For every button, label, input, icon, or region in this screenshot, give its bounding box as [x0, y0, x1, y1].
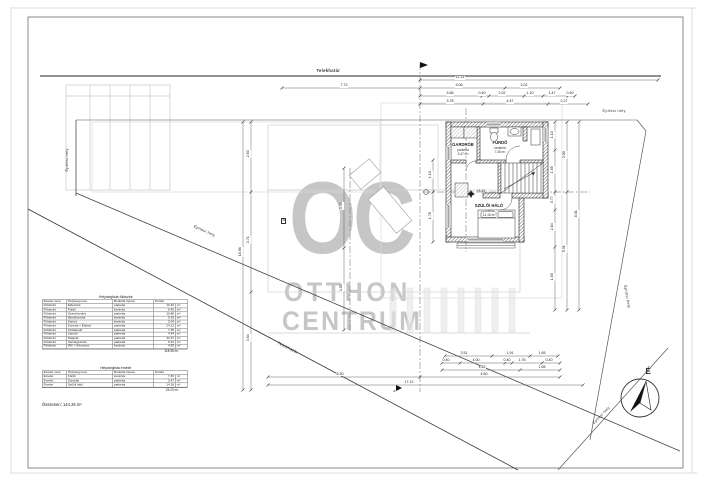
dim-label: 8.01: [575, 210, 579, 218]
furniture-below: [349, 159, 412, 234]
dim-label: 1.10: [429, 171, 433, 179]
north-letter: É: [645, 368, 651, 376]
level-mark-label: +3.10: [476, 190, 486, 193]
telekhatar-top-label: Telekhatár: [316, 69, 341, 73]
section-mark-b: B: [281, 218, 286, 224]
dim-label: 3.71: [247, 236, 251, 244]
dim-label: 4.00: [472, 359, 480, 363]
balcony-rail: [457, 243, 515, 248]
dim-label: 7.72: [340, 84, 348, 88]
axis-mark-a: a: [393, 390, 396, 393]
dim-label: 6.30: [336, 373, 344, 377]
room-table-ground-floor: Helyiséglista földszint Emelet neveHelyi…: [42, 295, 189, 353]
dim-label: 1.65: [551, 273, 555, 281]
dim-label: 1.76: [518, 359, 526, 363]
boundary-lines: [28, 76, 680, 470]
dim-label: 1.91: [506, 352, 514, 356]
dim-label: 2.02: [498, 92, 506, 96]
room-area-szuloi-halo: 14.18 m²: [482, 214, 496, 217]
dim-label: 3.64: [247, 334, 251, 342]
table-title: Helyiséglista földszint: [42, 295, 189, 299]
dim-label: 0.40: [478, 92, 486, 96]
dim-label: 3.78: [446, 100, 454, 104]
dim-label: 1.65: [538, 366, 546, 370]
dim-label: 16.96: [239, 247, 243, 257]
dim-label: 1.65: [551, 166, 555, 174]
dim-label: 3.56: [446, 92, 454, 96]
dim-label: 11.13: [455, 76, 465, 80]
dim-label: 1.10: [551, 131, 555, 139]
dim-label: 0.40: [545, 359, 553, 363]
pergola-beams: [390, 288, 515, 332]
dim-label: 1.78: [429, 212, 433, 220]
drawing-linework: [0, 0, 707, 500]
epitesi-hely-left-label: Építési hely: [66, 148, 70, 172]
dim-label: 1.65: [538, 352, 546, 356]
scan-edges: [10, 8, 697, 473]
dim-label: 2.02: [520, 84, 528, 88]
section-flag-icon: [420, 62, 428, 76]
dim-label: 1.47: [548, 92, 556, 96]
dim-label: 4.47: [506, 100, 514, 104]
dim-label: 3.51: [460, 352, 468, 356]
dim-label: 2.27: [560, 100, 568, 104]
floor-plan-sheet: OC OTTHON CENTRUM: [0, 0, 707, 500]
dim-label: 2.63: [247, 150, 251, 158]
axis-arrow-icon: [396, 385, 402, 391]
dim-label: 17.12: [404, 381, 414, 385]
room-area-gardrob: 3.47 m²: [457, 153, 469, 156]
room-table: Emelet neveHelyiség neveBurkolat típusaT…: [42, 299, 188, 348]
dim-label: 3.50: [340, 284, 344, 292]
epitesi-hely-top-right-label: Építési hely: [602, 110, 626, 114]
grand-total: Összesen: 144.25 m²: [42, 402, 82, 407]
table-subtotal: 118.96 m²: [42, 349, 187, 353]
dim-label: 3.49: [340, 202, 344, 210]
dim-label: 4.50: [480, 373, 488, 377]
table-subtotal: 25.29 m²: [42, 387, 187, 391]
dim-label: 3.00: [563, 151, 567, 159]
dim-label: 0.40: [566, 92, 574, 96]
dim-label: 3.06: [455, 84, 463, 88]
room-table: Emelet neveHelyiség neveBurkolat típusaT…: [42, 370, 188, 387]
dim-label: 1.10: [526, 92, 534, 96]
dim-label: 0.77: [551, 196, 555, 204]
staircase: [501, 163, 543, 193]
north-arrow-icon: [621, 379, 659, 417]
room-area-furdo: 7.45 m²: [494, 151, 506, 154]
dim-label: 0.40: [442, 359, 450, 363]
dim-label: 4.62: [478, 366, 486, 370]
dim-label: 0.40: [503, 359, 511, 363]
table-title: Helyiséglista emelet: [42, 366, 189, 370]
dim-label: 5.01: [563, 245, 567, 253]
dim-label: 2.84: [551, 223, 555, 231]
room-table-upper-floor: Helyiséglista emelet Emelet neveHelyiség…: [42, 366, 189, 392]
